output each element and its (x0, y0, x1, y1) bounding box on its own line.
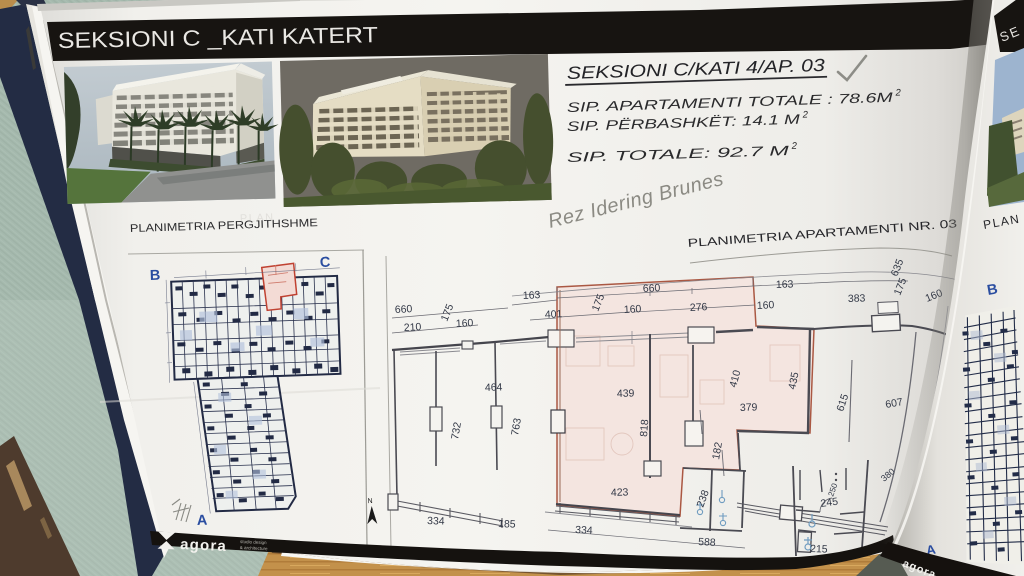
svg-text:160: 160 (456, 317, 474, 330)
svg-text:818: 818 (638, 419, 651, 437)
svg-text:160: 160 (757, 299, 775, 312)
svg-text:276: 276 (690, 301, 708, 314)
svg-text:2: 2 (894, 87, 901, 98)
svg-text:334: 334 (575, 524, 593, 537)
svg-text:A: A (197, 513, 209, 529)
svg-text:383: 383 (848, 292, 866, 305)
svg-text:210: 210 (404, 321, 422, 334)
svg-text:C: C (320, 255, 332, 271)
svg-text:660: 660 (643, 282, 661, 295)
svg-text:163: 163 (523, 289, 541, 302)
svg-text:464: 464 (485, 381, 503, 394)
svg-text:160: 160 (624, 303, 642, 316)
svg-text:2: 2 (790, 141, 797, 152)
svg-text:163: 163 (776, 278, 794, 291)
svg-text:N: N (367, 498, 372, 505)
svg-text:588: 588 (698, 536, 716, 549)
svg-text:agora: agora (180, 536, 228, 555)
svg-text:2: 2 (801, 109, 808, 120)
svg-text:215: 215 (810, 543, 828, 556)
svg-text:439: 439 (617, 387, 635, 400)
svg-text:660: 660 (395, 303, 413, 316)
svg-text:401: 401 (545, 308, 563, 321)
svg-text:185: 185 (498, 518, 516, 531)
svg-text:423: 423 (611, 486, 629, 499)
svg-text:334: 334 (427, 515, 445, 528)
svg-text:245: 245 (820, 496, 839, 510)
svg-text:B: B (150, 268, 161, 284)
svg-text:PLAN: PLAN (240, 212, 275, 225)
svg-text:379: 379 (740, 401, 758, 414)
